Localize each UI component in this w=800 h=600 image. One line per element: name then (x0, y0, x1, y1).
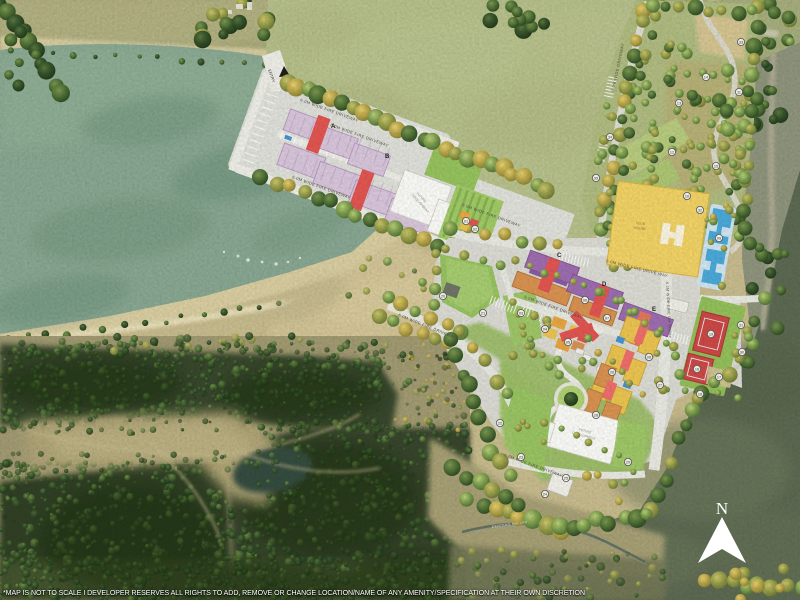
svg-text:N: N (716, 499, 728, 518)
